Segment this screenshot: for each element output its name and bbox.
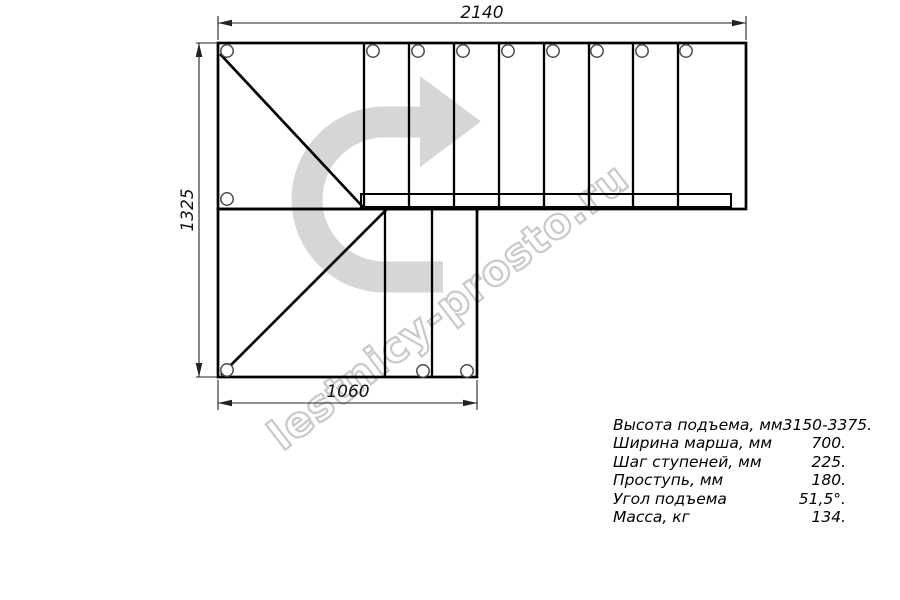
spec-row-mass: Масса, кг 134. [613, 508, 846, 526]
spec-label: Масса, кг [613, 508, 690, 526]
spec-label: Шаг ступеней, мм [613, 453, 762, 471]
bolt-hole [680, 45, 692, 57]
dim-arrow-right-icon [463, 400, 477, 407]
bolt-hole [502, 45, 514, 57]
spec-value: 180. [811, 471, 846, 489]
spec-row-angle: Угол подъема 51,5°. [613, 490, 846, 508]
spec-row-tread: Проступь, мм 180. [613, 471, 846, 489]
dim-arrow-left-icon [218, 400, 232, 407]
spec-value: 700. [811, 434, 846, 452]
spec-label: Угол подъема [613, 490, 727, 508]
dim-arrow-right-icon [732, 20, 746, 27]
bolt-hole [412, 45, 424, 57]
spec-row-step-pitch: Шаг ступеней, мм 225. [613, 453, 846, 471]
spec-row-height: Высота подъема, мм 3150-3375. [613, 416, 846, 434]
spec-value: 134. [811, 508, 846, 526]
bolt-hole [417, 365, 429, 377]
dim-arrow-up-icon [196, 43, 203, 57]
bolt-hole [221, 364, 233, 376]
spec-label: Проступь, мм [613, 471, 723, 489]
spec-value: 3150-3375. [783, 416, 872, 434]
bolt-hole [221, 45, 233, 57]
stair-outline [218, 43, 746, 377]
dim-arrow-down-icon [196, 363, 203, 377]
dimension-bottom-value: 1060 [326, 382, 369, 402]
spec-value: 225. [811, 453, 846, 471]
bolt-hole [461, 365, 473, 377]
stair-drawing-page: lestnicy-prosto.ru [0, 0, 900, 600]
dimension-left [196, 43, 217, 377]
spec-table: Высота подъема, мм 3150-3375. Ширина мар… [613, 416, 846, 526]
bolt-hole [367, 45, 379, 57]
spec-label: Ширина марша, мм [613, 434, 772, 452]
spec-label: Высота подъема, мм [613, 416, 783, 434]
bolt-hole [221, 193, 233, 205]
spec-value: 51,5°. [799, 490, 846, 508]
turn-arrow-head-icon [420, 76, 481, 167]
dimension-top-value: 2140 [460, 3, 503, 23]
dimension-left-value: 1325 [178, 188, 198, 231]
bolt-hole [591, 45, 603, 57]
bolt-hole [547, 45, 559, 57]
bolt-hole [636, 45, 648, 57]
spec-row-flight-width: Ширина марша, мм 700. [613, 434, 846, 452]
bolt-hole [457, 45, 469, 57]
dim-arrow-left-icon [218, 20, 232, 27]
